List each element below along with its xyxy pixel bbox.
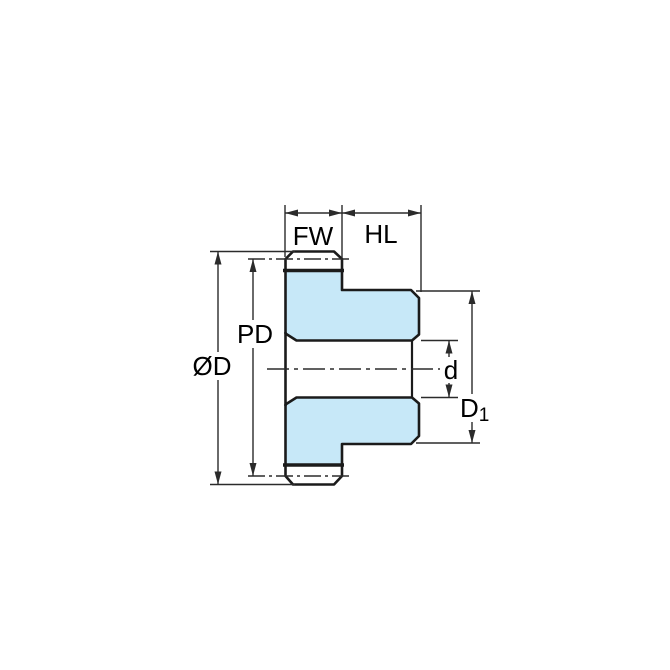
gear-tooth-bottom [286, 465, 343, 485]
dim-label-hub-diameter-main: D [460, 393, 479, 423]
arrowhead-d1-bottom [469, 430, 476, 443]
gear-body-lower-section [286, 398, 420, 466]
arrowhead-od-bottom [215, 472, 222, 485]
dim-label-face-width: FW [293, 221, 334, 251]
arrowhead-hl-left [342, 210, 355, 217]
gear-tooth-top [286, 252, 343, 271]
arrowhead-fw-right [329, 210, 342, 217]
arrowhead-d-bottom [446, 385, 453, 398]
dim-label-bore-diameter: d [444, 355, 458, 385]
dim-label-pitch-diameter: PD [237, 319, 273, 349]
arrowhead-od-top [215, 252, 222, 265]
gear-dimension-diagram: FW HL PD ØD d D1 [0, 0, 670, 670]
arrowhead-pd-top [250, 259, 257, 272]
arrowhead-hl-right [408, 210, 421, 217]
gear-drawing-canvas: FW HL PD ØD d D1 [0, 0, 670, 670]
arrowhead-d1-top [469, 291, 476, 304]
dim-label-hub-length: HL [364, 219, 397, 249]
dim-label-hub-diameter-subscript: 1 [479, 405, 490, 426]
arrowhead-pd-bottom [250, 463, 257, 476]
gear-body-upper-section [286, 271, 420, 341]
dim-label-outer-diameter: ØD [193, 351, 232, 381]
arrowhead-d-top [446, 341, 453, 354]
arrowhead-fw-left [285, 210, 298, 217]
